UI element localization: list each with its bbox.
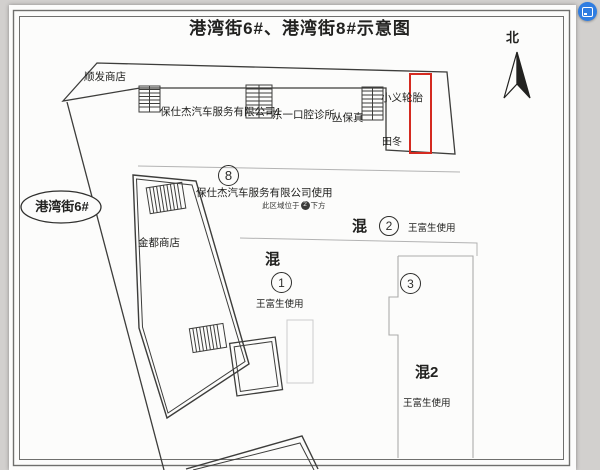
scanned-page: 港湾街6#、港湾街8#示意图 北 顺发商店 保仕杰汽车服务有限公司1 东一口腔诊… [0, 0, 600, 470]
circled-number-2: 2 [379, 216, 399, 236]
page-title: 港湾街6#、港湾街8#示意图 [120, 19, 480, 39]
zone1-user: 王富生使用 [256, 300, 304, 311]
stairwell-icon [189, 323, 226, 352]
label-cong-baozhen: 丛保真 [332, 112, 364, 124]
street-edge-line [67, 102, 164, 470]
label-shunfa-shop: 顺发商店 [84, 71, 126, 83]
label-dental-clinic: 东一口腔诊所 [272, 109, 335, 121]
badge-glyph-icon [582, 7, 593, 17]
note-circled-number: 2 [301, 201, 310, 210]
circled-number-1: 1 [271, 272, 292, 293]
label-baoshijie-company-1: 保仕杰汽车服务有限公司1 [160, 106, 281, 118]
north-label: 北 [506, 31, 519, 46]
highlight-rectangle [410, 74, 431, 153]
stairwell-icon [146, 182, 186, 213]
street-name-label: 港湾街6# [26, 200, 98, 215]
circled-number-8: 8 [218, 165, 239, 186]
central-usage-label: 保仕杰汽车服务有限公司使用 [196, 187, 333, 199]
label-tiandong: 田冬 [382, 137, 402, 149]
zone2-name: 混 [352, 218, 367, 235]
stairwell-icon [139, 86, 160, 112]
zone4-name: 混2 [415, 364, 438, 381]
north-arrow-icon [504, 52, 530, 98]
central-note: 此区域位于2下方 [262, 200, 326, 211]
zone1-name: 混 [265, 251, 280, 268]
browser-extension-badge-icon[interactable] [578, 2, 597, 21]
zone4-user: 王富生使用 [403, 399, 451, 410]
label-xiaoyi-tires: 小义轮胎 [381, 92, 423, 104]
label-jindu-shop: 金都商店 [138, 237, 180, 249]
circled-number-3: 3 [400, 273, 421, 294]
zone2-user: 王富生使用 [408, 224, 456, 235]
stairwell-icon [362, 87, 383, 120]
